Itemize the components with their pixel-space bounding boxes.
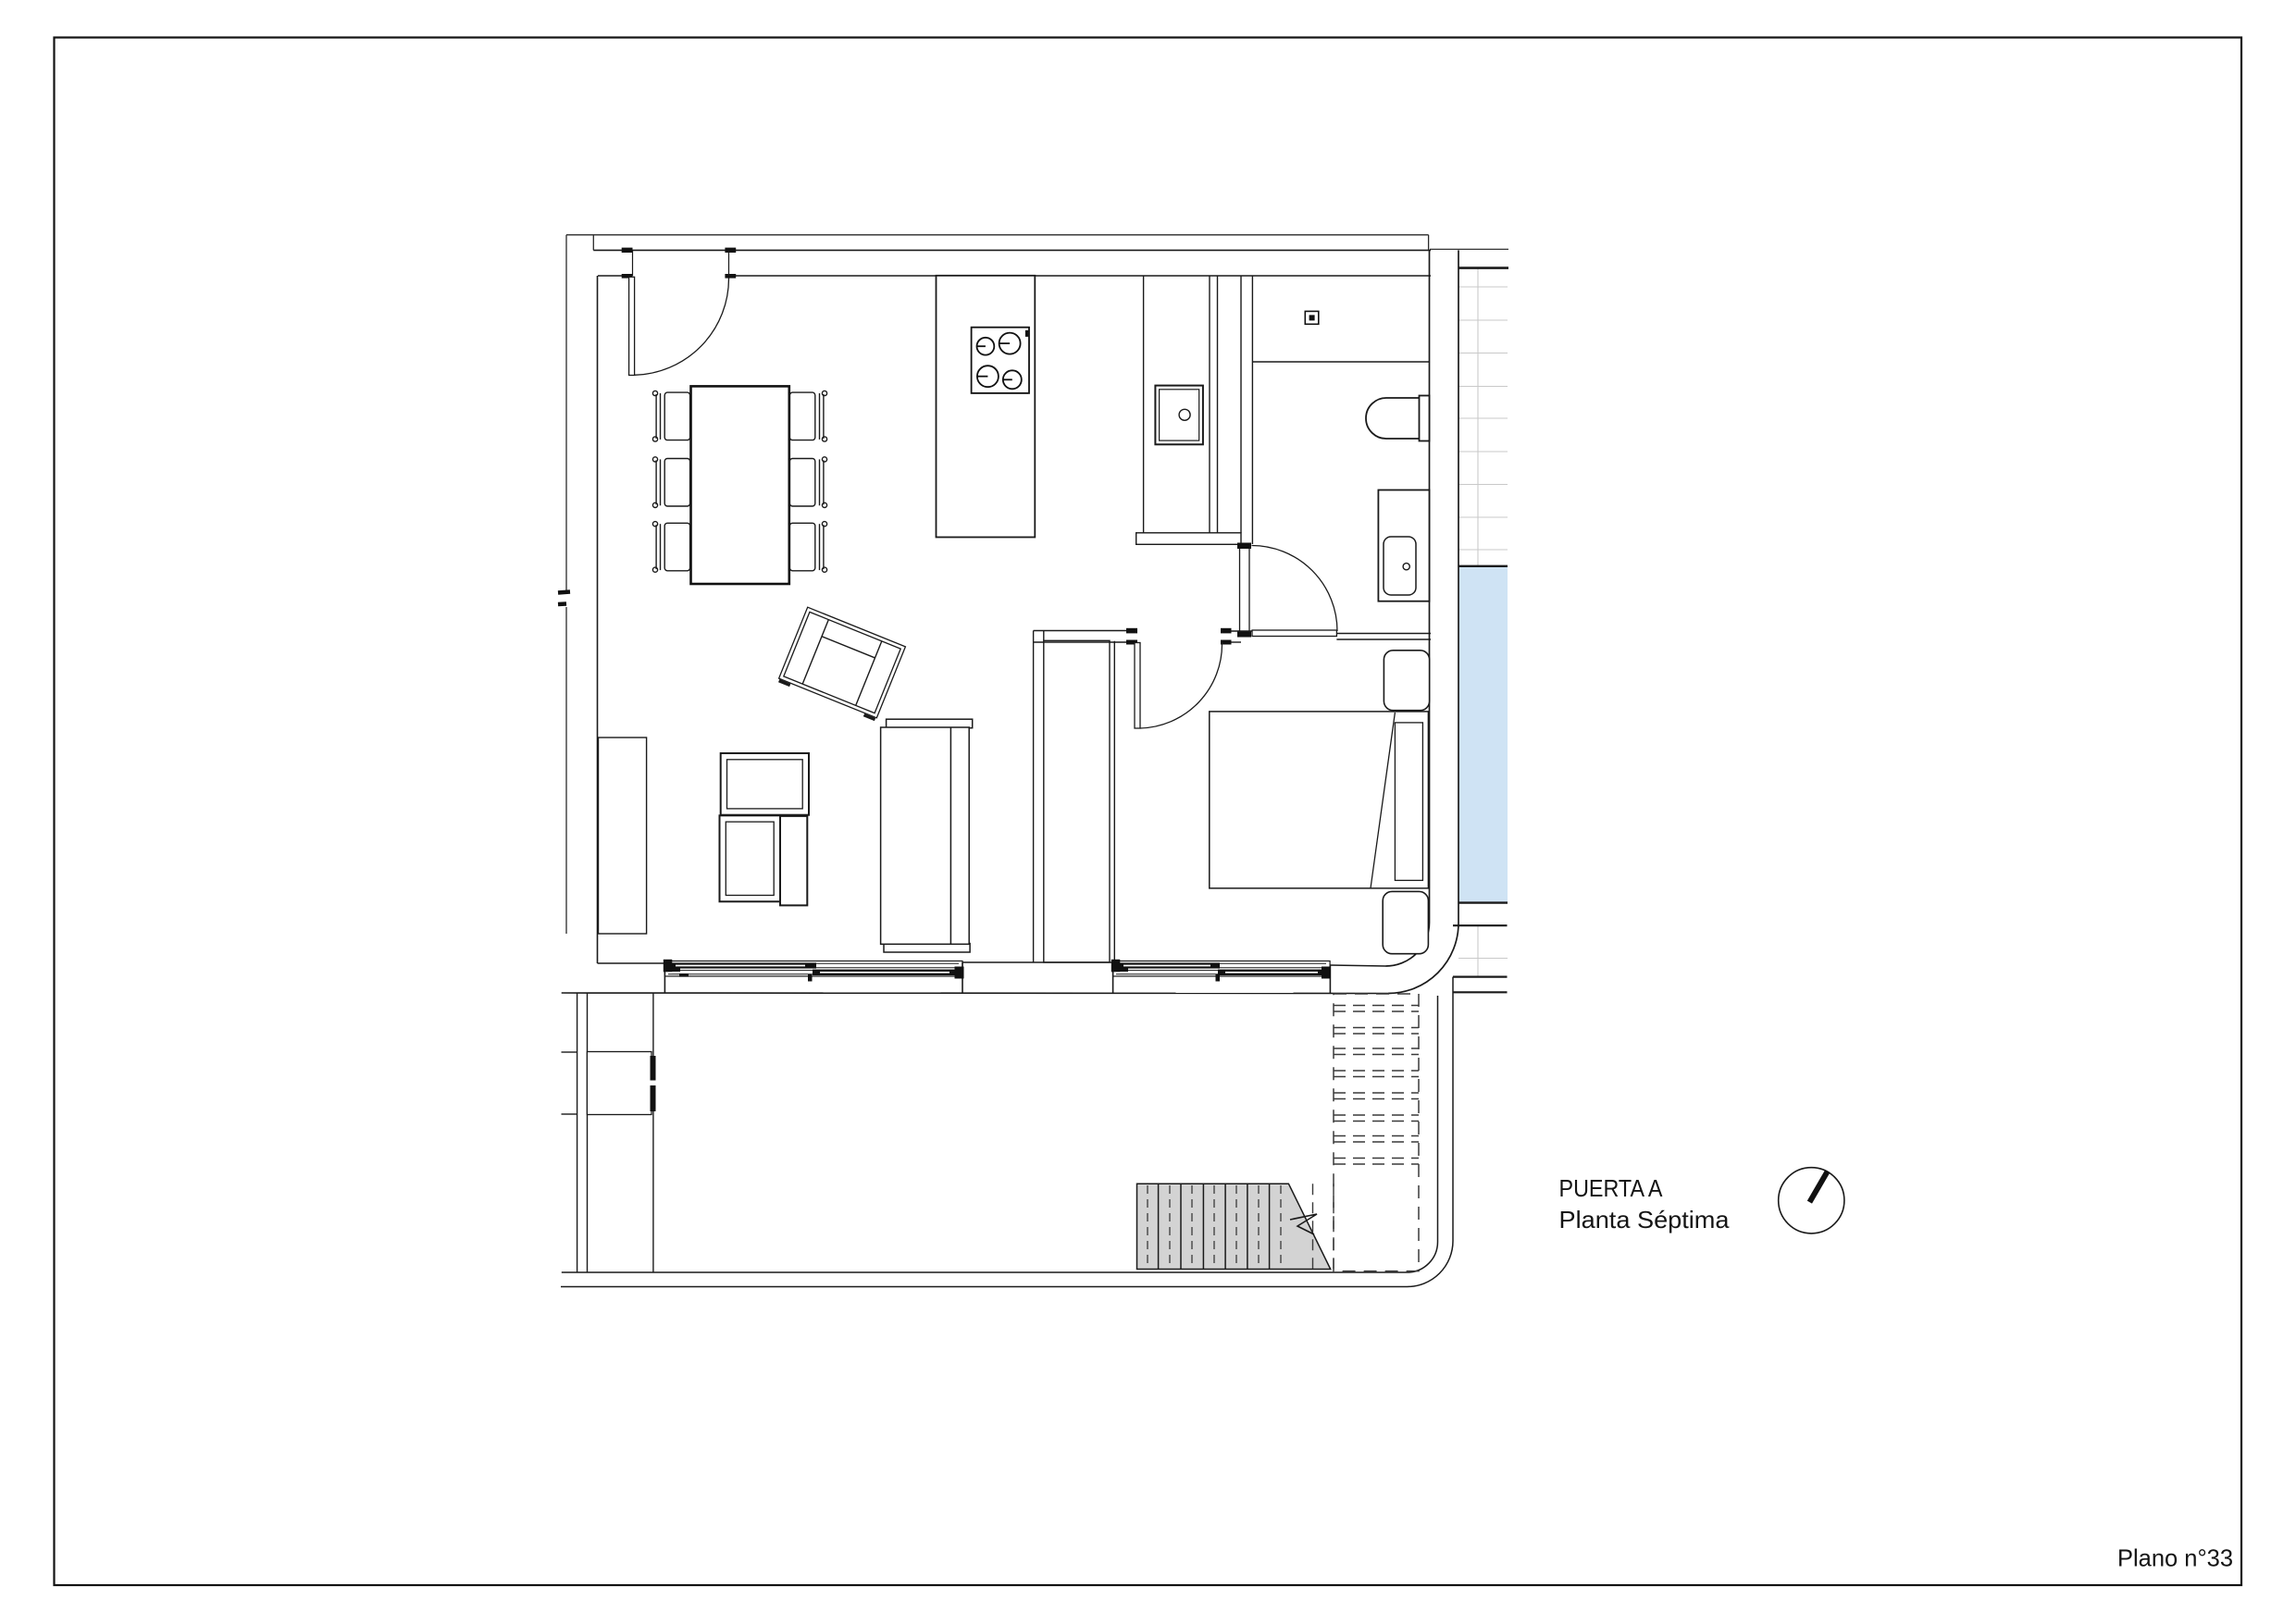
svg-text:PUERTA A: PUERTA A xyxy=(1559,1174,1664,1202)
svg-text:Planta Séptima: Planta Séptima xyxy=(1559,1206,1731,1233)
svg-text:Plano n°33: Plano n°33 xyxy=(2117,1544,2233,1572)
